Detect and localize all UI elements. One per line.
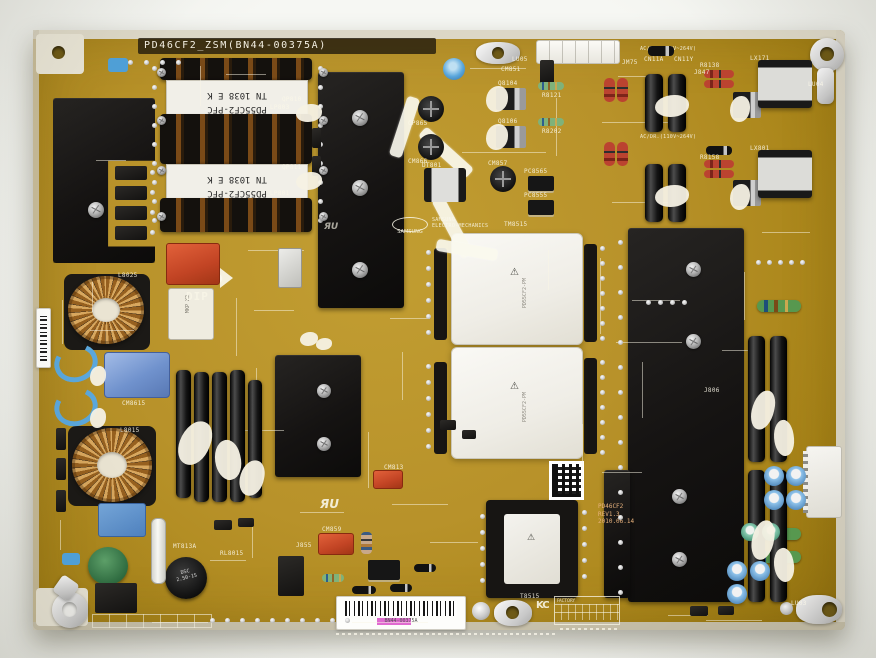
solder-pad: [426, 282, 431, 287]
silkscreen-label: DT801: [422, 162, 442, 169]
component: [56, 490, 66, 512]
solder-pad: [618, 565, 623, 570]
output-transformer: ⚠: [486, 500, 578, 598]
trace: [602, 472, 642, 473]
screw: [319, 166, 328, 175]
solder-pad: [600, 246, 605, 251]
capacitor-top: [786, 466, 806, 486]
solder-pad: [315, 618, 320, 623]
main-transformer-2: ⚠ PD55CF2-PM: [451, 347, 583, 459]
capacitor-top: [750, 561, 770, 581]
silkscreen-label: MT813A: [173, 543, 196, 550]
solder-pad: [225, 618, 230, 623]
solder-pad: [600, 291, 605, 296]
screw: [157, 166, 166, 175]
ul-mark: ЯU: [320, 497, 339, 511]
trace: [548, 250, 549, 290]
solder-pad: [618, 340, 623, 345]
component: [108, 58, 128, 72]
solder-pad: [152, 85, 157, 90]
trace: [556, 98, 557, 156]
component: [214, 520, 232, 530]
solder-pad: [318, 199, 323, 204]
capacitor-top: [727, 561, 747, 581]
factory-table: FACTORY: [554, 596, 620, 625]
solder-pad: [600, 360, 605, 365]
silkscreen-label: RL8015: [220, 550, 243, 557]
solder-pad: [618, 515, 623, 520]
side-sticker: [36, 308, 51, 368]
trace: [616, 342, 682, 343]
silkscreen-label: CN11A: [644, 56, 664, 63]
pfc-transformer-bobbin: [160, 114, 312, 164]
mount-hole: [492, 47, 504, 59]
solder-pad: [150, 230, 155, 235]
component: [115, 166, 147, 180]
solder-pad: [618, 240, 623, 245]
solder-pad: [318, 85, 323, 90]
trace: [62, 300, 63, 344]
silkscreen-label: CP865: [408, 120, 428, 127]
warning-icon: ⚠: [510, 382, 519, 392]
solder-pad: [426, 380, 431, 385]
silkscreen-label: J855: [296, 542, 312, 549]
component: [238, 518, 254, 527]
component: [758, 150, 812, 198]
solder-pad: [618, 590, 623, 595]
component: [538, 82, 564, 90]
solder-pad: [582, 510, 587, 515]
component: [704, 170, 734, 178]
component: [352, 586, 376, 594]
solder-pad: [480, 514, 485, 519]
pfc-transformer-bobbin: [160, 58, 312, 80]
solder-pad: [480, 562, 485, 567]
solder-pad: [618, 440, 623, 445]
component: [373, 470, 403, 489]
kc-mark: KC: [536, 600, 549, 611]
component: [115, 226, 147, 240]
silkscreen-label: LP801: [270, 190, 290, 197]
component: [278, 556, 304, 596]
screw: [319, 116, 328, 125]
silkscreen-label: R8202: [542, 128, 562, 135]
board-title: PD46CF2_ZSM(BN44-00375A): [138, 38, 436, 51]
silkscreen-text-row: [336, 633, 556, 635]
screw: [352, 180, 368, 196]
solder-pad: [426, 314, 431, 319]
trace: [92, 282, 93, 312]
silkscreen-label: L8025: [118, 272, 138, 279]
solder-pad: [152, 104, 157, 109]
solder-pad: [600, 390, 605, 395]
silkscreen-label: CM857: [488, 160, 508, 167]
trace: [430, 542, 478, 543]
component: [617, 142, 628, 166]
solder-pad: [128, 60, 133, 65]
transformer-pin-rail: [434, 248, 447, 340]
green-disc-varistor: [88, 547, 128, 585]
screw: [672, 489, 687, 504]
trace: [392, 504, 448, 505]
silkscreen-label: L8015: [120, 427, 140, 434]
screw: [352, 262, 368, 278]
solder-pad: [150, 190, 155, 195]
component: [540, 60, 554, 84]
screw: [686, 262, 701, 277]
barcode-sticker: BN44-00375A: [336, 596, 466, 630]
screw: [672, 552, 687, 567]
mount-hole: [62, 602, 77, 617]
main-transformer-label: PD55CF2-PM: [522, 278, 528, 308]
silkscreen-label: R8138: [700, 62, 720, 69]
component: [758, 60, 812, 108]
solder-pad: [618, 490, 623, 495]
side-barcode: [40, 315, 47, 361]
trace: [762, 232, 810, 233]
silkscreen-label: QP811: [282, 164, 302, 171]
solder-pad: [600, 420, 605, 425]
solder-pad: [176, 60, 181, 65]
datamatrix-code: [552, 464, 581, 497]
title-strip: PD46CF2_ZSM(BN44-00375A): [138, 38, 436, 54]
capacitor-top: [490, 166, 516, 192]
black-disc-capacitor: DSC 2.50-1S: [165, 557, 207, 599]
component: [322, 574, 344, 582]
solder-pad: [426, 266, 431, 271]
trace: [744, 272, 745, 320]
trace: [90, 330, 134, 331]
trace: [210, 560, 246, 561]
solder-pad: [150, 210, 155, 215]
component: [56, 458, 66, 480]
silkscreen-label: CM859: [322, 526, 342, 533]
silkscreen-label: T8515: [520, 593, 540, 600]
pfc-transformer-bobbin: [160, 198, 312, 232]
trace: [582, 424, 583, 488]
solder-pad: [789, 260, 794, 265]
silkscreen-label: LU03: [791, 600, 807, 607]
silkscreen-label: J847: [694, 69, 710, 76]
solder-pad: [646, 300, 651, 305]
component: [115, 186, 147, 200]
solder-pad: [210, 618, 215, 623]
transformer-pin-rail: [584, 244, 597, 342]
screw: [319, 68, 328, 77]
solder-pad: [582, 574, 587, 579]
solder-pad: [618, 465, 623, 470]
solder-pad: [480, 578, 485, 583]
barcode-text: BN44-00375A: [345, 618, 457, 624]
solder-pad: [618, 390, 623, 395]
trace: [642, 362, 643, 418]
component: [440, 420, 456, 430]
transformer-pin-rail: [584, 358, 597, 454]
component: [361, 532, 372, 554]
solder-pad: [658, 300, 663, 305]
screw: [157, 68, 166, 77]
solder-pad: [480, 546, 485, 551]
toroid-core: [97, 452, 127, 478]
silkscreen-label: CM851: [501, 66, 521, 73]
solder-pad: [618, 415, 623, 420]
solder-pad: [270, 618, 275, 623]
silkscreen-label: R8158: [700, 154, 720, 161]
trace: [226, 74, 266, 75]
solder-pad: [600, 336, 605, 341]
component: [318, 533, 354, 555]
lower-center-heatsink: [275, 355, 361, 477]
component: [718, 606, 734, 615]
trace: [200, 66, 201, 106]
right-heatsink-extension: [604, 470, 630, 598]
capacitor-top: [786, 490, 806, 510]
component: [424, 168, 466, 202]
mount-hole: [820, 47, 834, 61]
trace: [96, 160, 126, 161]
component: [390, 584, 412, 592]
trace: [152, 622, 208, 623]
solder-pad: [618, 365, 623, 370]
dip-arrow-head: [220, 268, 233, 288]
solder-pad: [285, 618, 290, 623]
solder-pad: [152, 218, 157, 223]
silkscreen-label: J806: [704, 387, 720, 394]
dip-label: DIP: [186, 290, 209, 303]
mount-hole: [52, 46, 65, 59]
trace: [402, 352, 403, 400]
trace: [254, 310, 294, 311]
solder-pad: [600, 261, 605, 266]
trace: [352, 622, 428, 623]
component: [115, 206, 147, 220]
ul-mark: ЯU: [324, 222, 338, 232]
component: [278, 248, 302, 288]
silkscreen-label: LU04: [808, 81, 824, 88]
silkscreen-label: PC8565: [524, 168, 547, 175]
samsung-logo: SAMSUNG: [392, 217, 428, 232]
trace: [300, 512, 344, 513]
solder-pad: [150, 170, 155, 175]
screw: [317, 437, 331, 451]
solder-pad: [152, 161, 157, 166]
component: [368, 560, 400, 580]
component: [528, 200, 554, 215]
solder-pad: [330, 618, 335, 623]
silkscreen-label: CN11Y: [674, 56, 694, 63]
silkscreen-text-row: [560, 628, 620, 630]
component: [538, 118, 564, 126]
toroid-core: [92, 298, 120, 322]
component: [312, 128, 321, 148]
solder-pad: [345, 618, 350, 623]
solder-pad: [582, 558, 587, 563]
solder-pad: [582, 542, 587, 547]
trace: [60, 520, 61, 550]
small-blue-capacitor: [98, 503, 146, 537]
solder-pad: [426, 396, 431, 401]
solder-pad: [600, 276, 605, 281]
silkscreen-label: CM813: [384, 464, 404, 471]
solder-pad: [426, 444, 431, 449]
solder-pad: [152, 142, 157, 147]
ac-rating: AC/DR.(110V~264V): [640, 134, 696, 140]
solder-pad: [426, 330, 431, 335]
solder-pad: [618, 540, 623, 545]
component: [414, 564, 436, 572]
component: [166, 243, 220, 285]
output-transformer-label: ⚠: [504, 514, 560, 584]
screw: [157, 212, 166, 221]
silkscreen-label: Q8106: [498, 118, 518, 125]
solder-pad: [144, 60, 149, 65]
right-connector: [806, 446, 842, 518]
trace: [236, 298, 237, 356]
solder-pad: [480, 530, 485, 535]
silkscreen-label: LX171: [750, 55, 770, 62]
right-heatsink: [628, 228, 744, 602]
fuse: [151, 518, 166, 584]
screw: [317, 384, 331, 398]
solder-pad: [152, 199, 157, 204]
solder-pad: [767, 260, 772, 265]
solder-pad: [600, 435, 605, 440]
component: [56, 428, 66, 450]
silkscreen-label: LP803: [270, 104, 290, 111]
trace: [706, 620, 762, 621]
solder-pad: [600, 321, 605, 326]
trace: [252, 522, 253, 558]
solder-pad: [255, 618, 260, 623]
silkscreen-label: JM75: [622, 59, 638, 66]
solder-pad: [426, 412, 431, 417]
pcb-photo: PD46CF2_ZSM(BN44-00375A) PD55CF2-PFC TN …: [0, 0, 876, 658]
mount-hole: [822, 602, 837, 617]
silkscreen-label: QP810: [282, 96, 302, 103]
warning-icon: ⚠: [510, 268, 519, 278]
silkscreen-label: CM8615: [122, 400, 145, 407]
barcode: [345, 601, 457, 616]
solder-pad: [426, 428, 431, 433]
solder-pad: [778, 260, 783, 265]
solder-pad: [160, 60, 165, 65]
trace: [368, 432, 369, 488]
component: [704, 80, 734, 88]
silkscreen-label: LX801: [750, 145, 770, 152]
solder-pad: [600, 375, 605, 380]
component: [528, 176, 554, 191]
solder-pad: [800, 260, 805, 265]
solder-pad: [582, 526, 587, 531]
component: [648, 46, 674, 56]
component: [617, 78, 628, 102]
silkscreen-label: R8121: [542, 92, 562, 99]
solder-pad: [600, 306, 605, 311]
silkscreen-table: [92, 614, 212, 628]
component: [62, 553, 80, 565]
screw: [88, 202, 104, 218]
solder-pad: [600, 405, 605, 410]
trace: [462, 152, 546, 153]
solder-pad: [152, 123, 157, 128]
solder-pad: [618, 290, 623, 295]
silkscreen-label: TM8515: [504, 221, 527, 228]
solder-pad: [600, 450, 605, 455]
solder-pad: [426, 298, 431, 303]
component: [704, 160, 734, 168]
capacitor-top: [443, 58, 465, 80]
screw: [157, 116, 166, 125]
component: [757, 300, 801, 312]
samsung-logo-text: SAMSUNG: [397, 229, 422, 235]
capacitor-top: [764, 490, 784, 510]
transformer-pin-rail: [434, 362, 447, 454]
solder-pad: [618, 315, 623, 320]
screw: [686, 334, 701, 349]
capacitor-top: [418, 134, 444, 160]
capacitor-top: [727, 584, 747, 604]
component: [604, 142, 615, 166]
screw: [319, 212, 328, 221]
component: [95, 583, 137, 613]
solder-pad: [152, 180, 157, 185]
mount-pad: [472, 602, 490, 620]
component: [604, 78, 615, 102]
capacitor-top: [418, 96, 444, 122]
capacitor-top: [764, 466, 784, 486]
screw: [352, 110, 368, 126]
solder-pad: [300, 618, 305, 623]
board-edge-right: [836, 30, 845, 630]
component: [690, 606, 708, 616]
solder-pad: [618, 265, 623, 270]
trace: [390, 318, 430, 319]
warning-icon: ⚠: [527, 534, 535, 543]
factory-table-header: FACTORY: [555, 597, 619, 604]
silkscreen-label: Q8104: [498, 80, 518, 87]
solder-pad: [426, 250, 431, 255]
component: [462, 430, 476, 439]
blue-film-capacitor: [104, 352, 170, 398]
mount-hole: [506, 606, 519, 619]
solder-pad: [670, 300, 675, 305]
rev-silkscreen: PD46CF2 REV1.3 2010.06.14: [598, 503, 634, 526]
solder-pad: [426, 364, 431, 369]
electrolytic-capacitor: [212, 372, 227, 502]
silkscreen-label: LU05: [512, 56, 528, 63]
solder-pad: [240, 618, 245, 623]
silkscreen-label: PC8555: [524, 192, 547, 199]
main-transformer-label: PD55CF2-PM: [522, 392, 528, 422]
solder-pad: [682, 300, 687, 305]
solder-pad: [756, 260, 761, 265]
trace: [240, 430, 284, 431]
